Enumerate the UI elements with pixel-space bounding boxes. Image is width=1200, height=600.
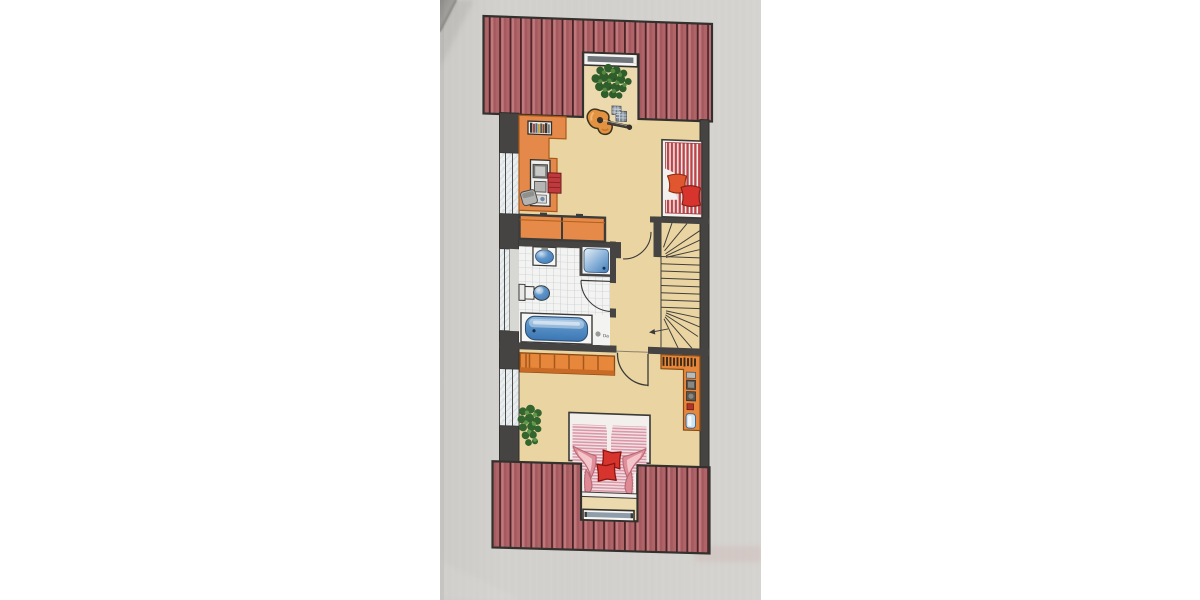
svg-text:Da: Da	[603, 333, 609, 338]
